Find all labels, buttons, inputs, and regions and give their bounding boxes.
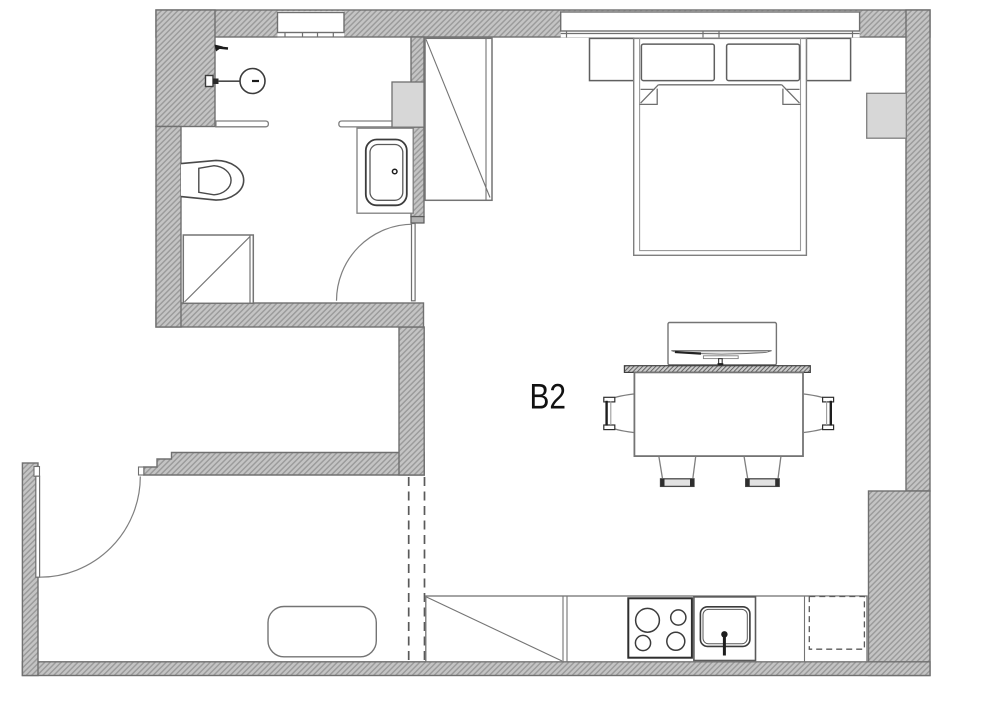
svg-text:B2: B2 <box>530 376 567 416</box>
